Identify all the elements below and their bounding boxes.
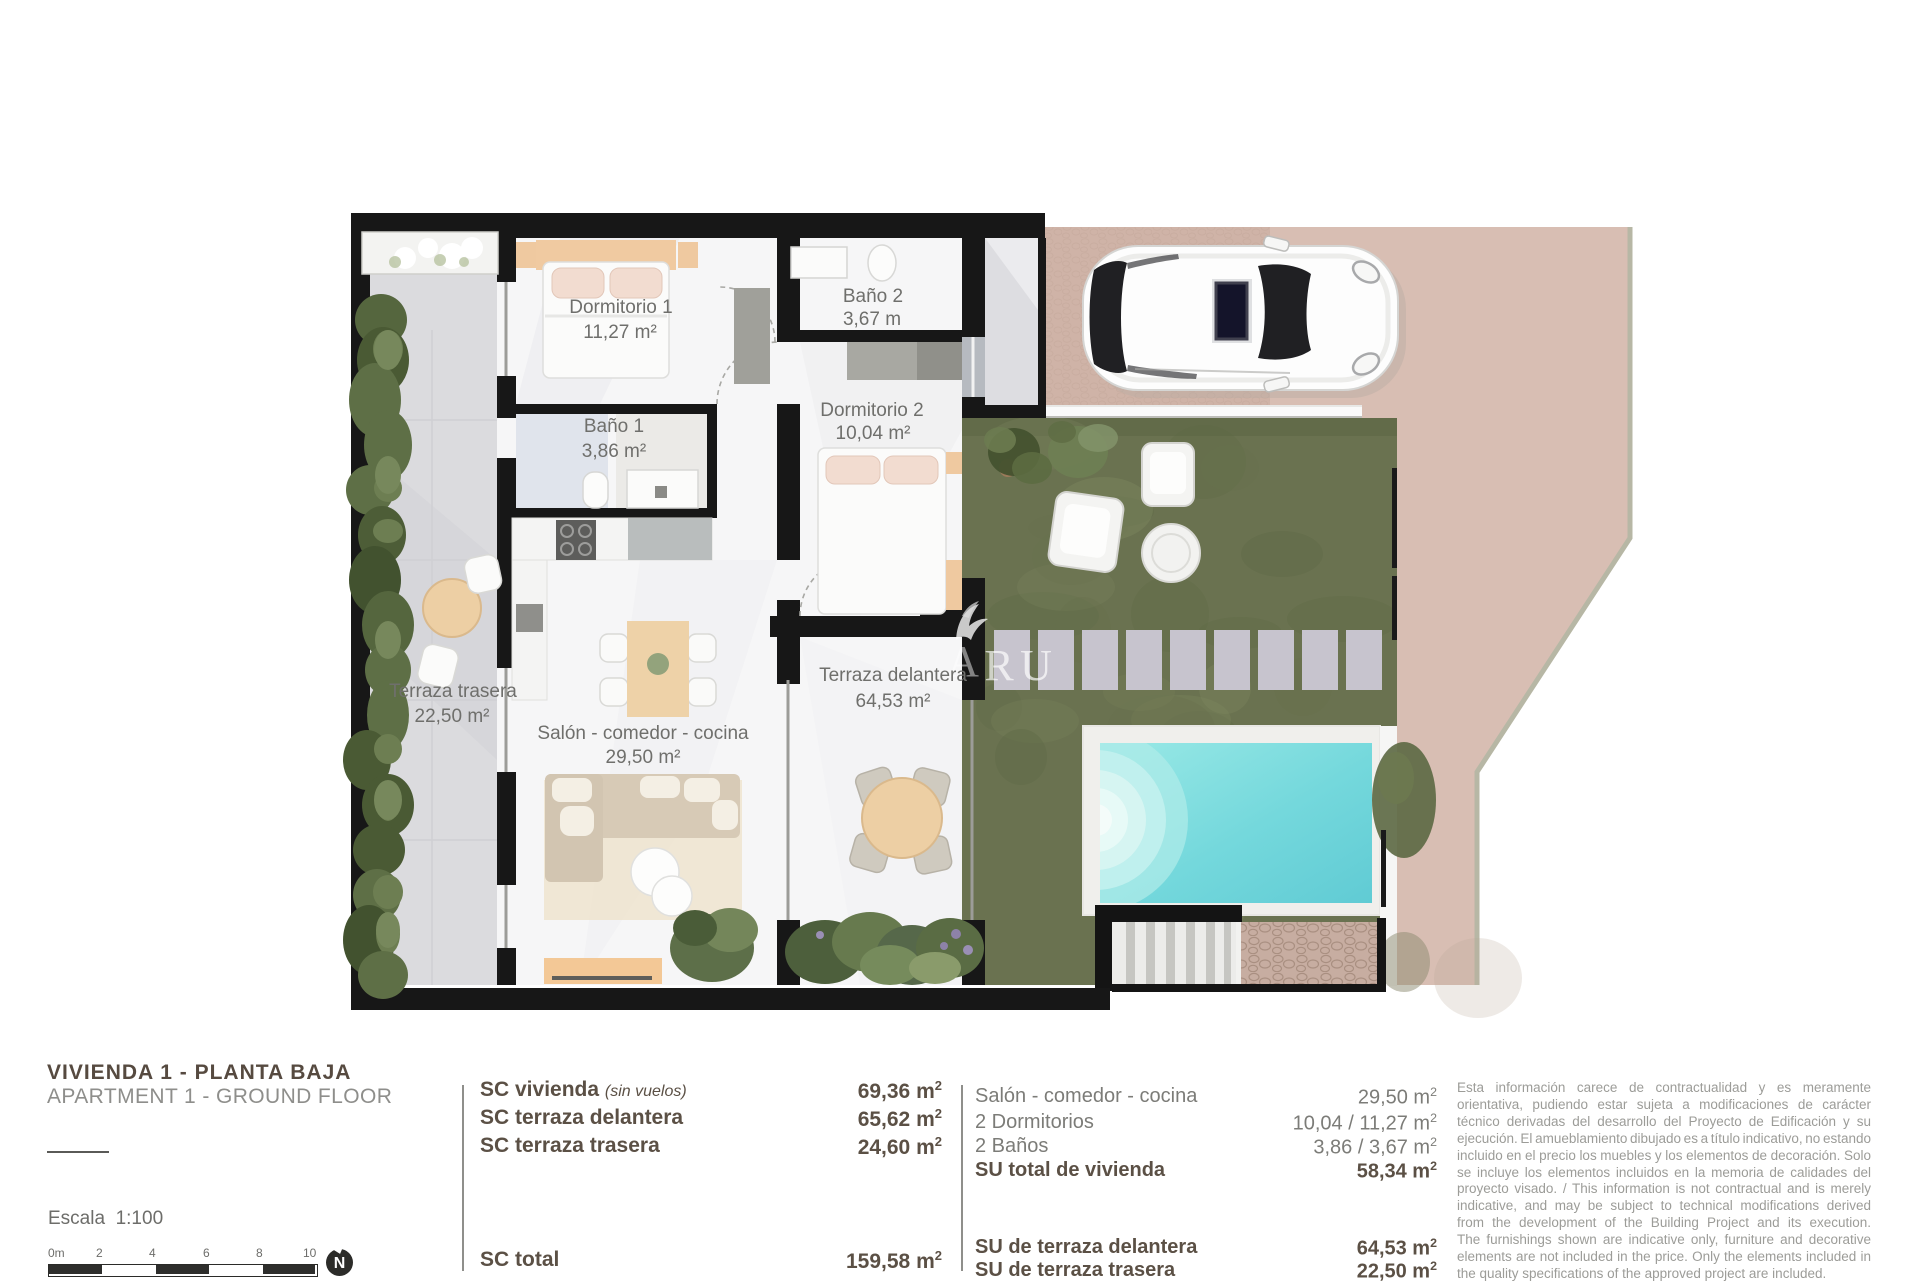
svg-text:Dormitorio 2: Dormitorio 2: [820, 400, 923, 421]
svg-text:Terraza trasera: Terraza trasera: [389, 681, 517, 702]
svg-text:Dormitorio 1: Dormitorio 1: [569, 297, 672, 318]
svg-text:Baño 2: Baño 2: [843, 286, 903, 307]
svg-text:10,04 m²: 10,04 m²: [836, 423, 911, 444]
svg-text:11,27 m²: 11,27 m²: [583, 322, 657, 343]
svg-text:22,50 m²: 22,50 m²: [415, 706, 490, 727]
svg-text:Baño 1: Baño 1: [584, 416, 644, 437]
svg-text:3,86 m²: 3,86 m²: [582, 441, 646, 462]
svg-text:Salón - comedor - cocina: Salón - comedor - cocina: [537, 723, 749, 744]
svg-text:U: U: [1020, 641, 1052, 690]
svg-text:R: R: [984, 641, 1014, 690]
svg-text:64,53 m²: 64,53 m²: [856, 691, 931, 712]
svg-text:3,67 m: 3,67 m: [843, 309, 901, 330]
svg-text:29,50 m²: 29,50 m²: [606, 747, 681, 768]
svg-text:Terraza delantera: Terraza delantera: [819, 665, 967, 686]
